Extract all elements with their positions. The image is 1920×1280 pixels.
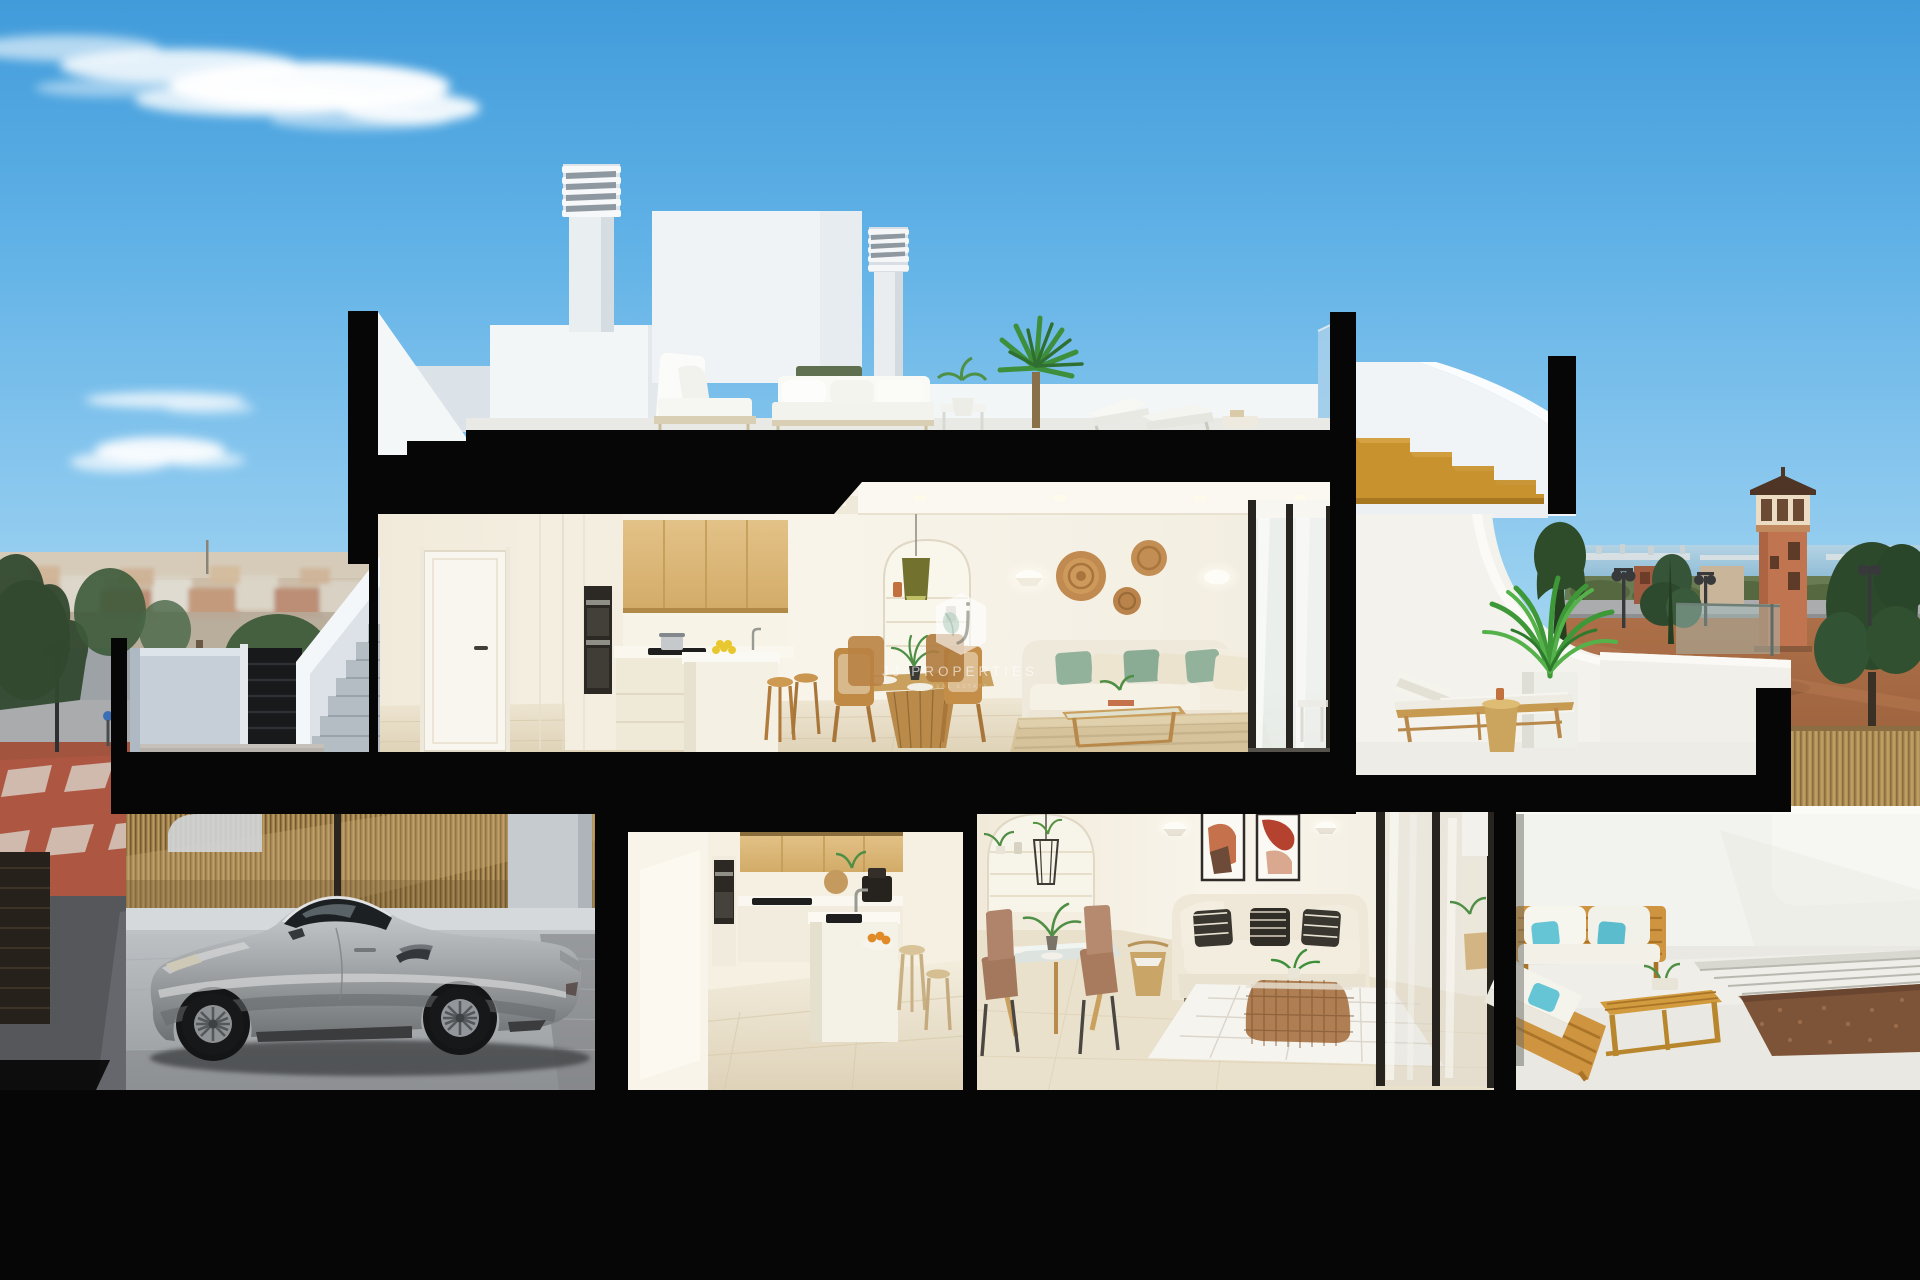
svg-text:JJ PROPERTIES: JJ PROPERTIES xyxy=(882,664,1038,679)
svg-text:REAL ESTATE: REAL ESTATE xyxy=(930,684,989,690)
